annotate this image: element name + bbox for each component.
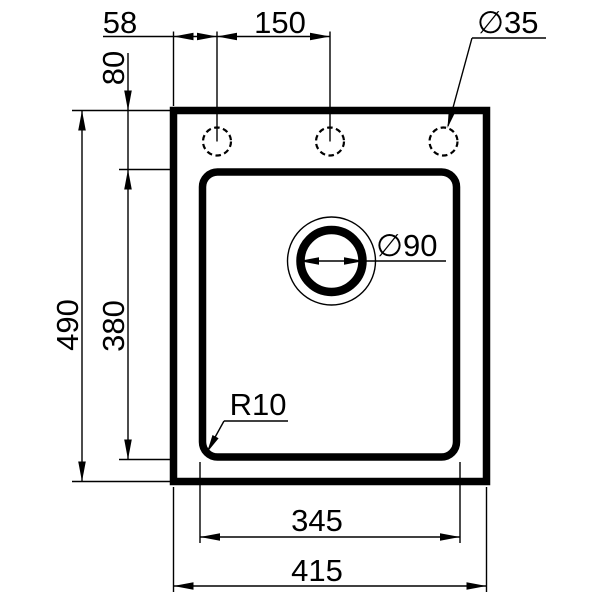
arrowhead: [197, 33, 217, 41]
arrowhead: [78, 462, 86, 482]
arrowhead: [124, 440, 132, 460]
dim-150-label: 150: [254, 5, 306, 40]
arrowhead: [217, 33, 237, 41]
drawing-canvas: 58 150 ∅35 80 490 380 ∅90 R10 345 415: [0, 0, 600, 600]
arrowhead: [174, 33, 194, 41]
arrowhead: [124, 170, 132, 190]
drain-diameter-label: ∅90: [376, 228, 438, 263]
hole-diameter-label: ∅35: [477, 5, 539, 40]
arrowhead: [124, 91, 132, 111]
arrowhead: [310, 33, 330, 41]
arrowhead: [467, 582, 487, 590]
sink-dimension-drawing: 58 150 ∅35 80 490 380 ∅90 R10 345 415: [0, 0, 600, 600]
dim-490-label: 490: [50, 299, 85, 351]
arrowhead: [200, 533, 220, 541]
corner-radius-label: R10: [230, 387, 287, 422]
faucet-hole-right: [430, 128, 458, 156]
dim-380-label: 380: [96, 300, 131, 352]
arrowhead: [207, 435, 219, 453]
arrowhead: [174, 582, 194, 590]
dim-345-label: 345: [291, 503, 343, 538]
arrowhead: [440, 533, 460, 541]
dim-415-label: 415: [291, 553, 343, 588]
arrowhead: [78, 111, 86, 131]
dim-80-label: 80: [96, 51, 131, 85]
arrowhead: [448, 110, 456, 128]
dim-58-label: 58: [103, 5, 137, 40]
